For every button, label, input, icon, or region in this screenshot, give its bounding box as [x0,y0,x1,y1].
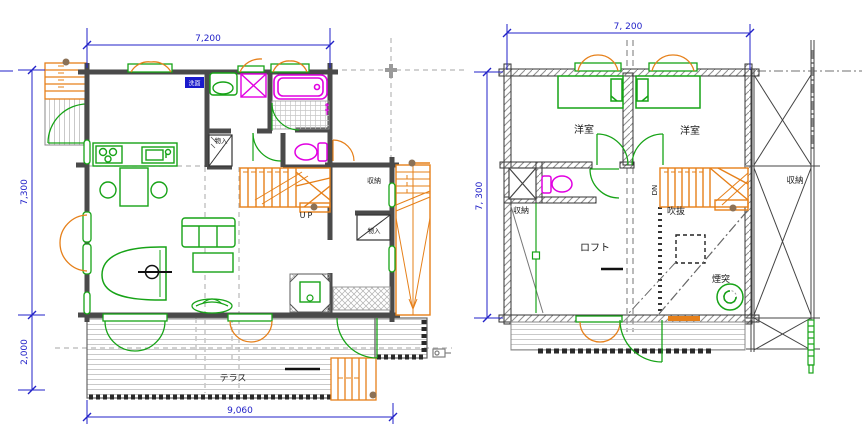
garden-faucet [433,349,451,357]
floor2-plan: 収納 [474,22,862,373]
balcony-deck [511,322,745,351]
grand-piano [102,247,172,300]
chimney-label: 煙突 [712,273,730,285]
bathtub [274,75,327,99]
wing-window-upper [389,183,395,207]
post-dot [63,59,70,66]
storage-right-label: 収納 [786,175,803,186]
hearth-dashed-square [676,235,705,263]
washroom-badge-label: 洗面 [188,80,200,88]
shower-unit [241,74,266,97]
wing-storage-label: 収納 [367,176,381,185]
terrace-steps [331,358,377,400]
wood-stove [290,274,330,312]
stairs-up-label: UP [300,211,315,220]
toilet-room-1f [253,133,354,161]
window-left-lower [84,292,90,314]
floorplan-drawing: 洗面 [0,0,867,444]
washbasin-unit [210,73,237,95]
sofa [182,218,235,247]
dim-1f-left-lower: 2,000 [20,339,30,365]
window-top-bath [271,61,309,72]
terrace-label: テラス [220,373,247,384]
coffee-table [193,253,233,272]
storage-left-label: 収納 [513,205,529,215]
storage-left-box [509,168,536,199]
washroom-badge: 洗面 [185,77,204,88]
balcony-brace-structure [746,40,820,352]
toilet-2f [542,176,572,193]
bed-left [558,76,623,108]
wing-closet-label: 物入 [368,226,382,235]
chair [151,182,167,198]
toilet-1f [295,143,327,161]
dim-2f-left: 7, 300 [475,181,485,210]
grid-post-marker [385,64,397,78]
dining-table [100,168,167,206]
flue-dashdot-line [659,210,748,314]
loft-label: ロフト [580,243,610,254]
window-left-upper [84,140,90,164]
dim-1f-bottom: 9,060 [227,406,253,416]
wing-window-lower [389,246,395,272]
dim-2f-top: 7, 200 [614,22,643,32]
stairs-down-label: DN [651,185,659,196]
bedroom-right-label: 洋室 [680,124,700,137]
doma-hatched-floor [333,287,390,310]
dim-1f-top: 7,200 [195,34,221,44]
kitchen-counter [93,143,177,166]
hall-closet-label: 物入 [215,136,229,145]
chimney-symbol [717,284,743,310]
window-top-left [128,62,172,72]
exterior-ladder [808,320,814,373]
toilet-window-swing [333,140,354,161]
floorplan-screenshot: 洗面 [0,0,867,444]
bathroom [272,75,329,130]
floor1-plan: 洗面 [0,28,465,424]
window-top-mid [238,59,264,72]
toilet-2f-door-swing [590,169,619,198]
void-label: 吹抜 [667,205,685,217]
exterior-side-stairs [396,160,430,316]
potted-plant [192,299,232,313]
dim-1f-left-upper: 7,300 [20,179,30,205]
flue-dashdot-line-2 [628,262,676,314]
entrance-steps [45,63,87,99]
wing-closet: 物入 [357,215,390,240]
tile-floor [272,101,329,129]
bed-right [636,76,700,108]
stairs-up [240,168,330,212]
stairs-down [660,168,748,212]
chair [100,182,116,198]
hall-closet: 物入 [209,135,232,166]
toilet-door-swing [253,133,281,161]
bedroom-left-label: 洋室 [574,123,594,136]
